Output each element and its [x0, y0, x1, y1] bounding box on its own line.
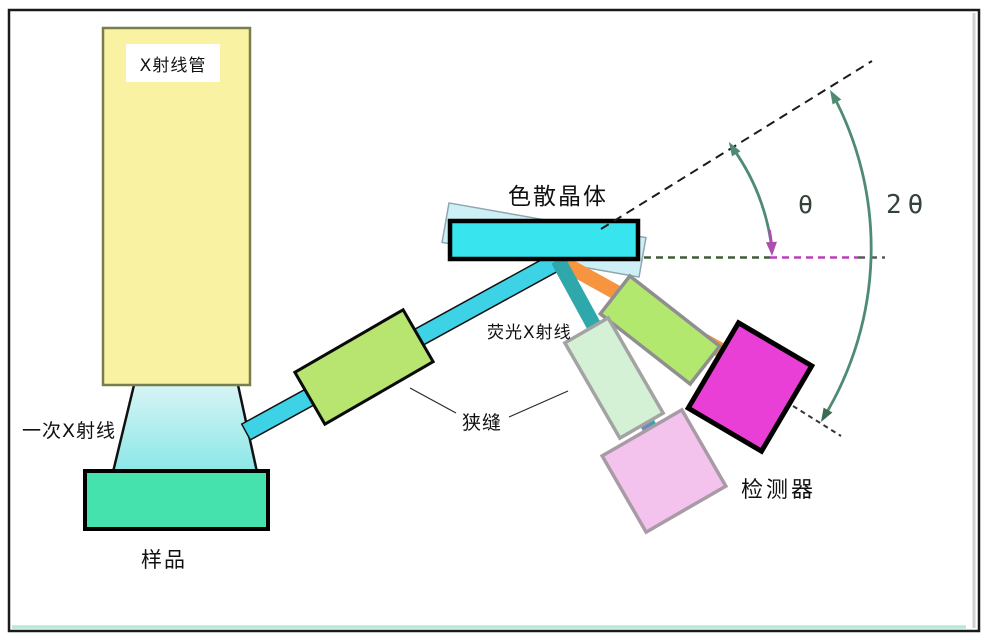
- slit-leader-line-left: [410, 388, 456, 413]
- wdxrf-schematic: X射线管 一次X射线 样品 色散晶体 荧光X射线 狭缝 检测器 θ 2θ: [0, 0, 985, 640]
- sample-label: 样品: [141, 548, 187, 572]
- detector-label: 检测器: [741, 478, 816, 503]
- primary-xray-label: 一次X射线: [22, 420, 116, 442]
- slit-label: 狭缝: [462, 412, 502, 434]
- two-theta-arc-top-arrowhead: [830, 90, 841, 105]
- theta-arc: [732, 147, 772, 250]
- two-theta-arc-bottom-arrowhead: [821, 408, 832, 422]
- two-theta-arc: [824, 95, 871, 417]
- slit-leader-line-right: [509, 391, 568, 417]
- two-theta-direction-dashed-line: [793, 406, 841, 436]
- crystal-label: 色散晶体: [508, 184, 608, 210]
- primary-beam-cone: [113, 385, 257, 472]
- theta-label: θ: [798, 190, 813, 219]
- two-theta-label: 2θ: [886, 190, 929, 220]
- xray-tube-label: X射线管: [140, 56, 207, 76]
- sample-block: [85, 471, 268, 529]
- theta-arc-top-arrowhead: [729, 142, 741, 157]
- diagram-canvas: X射线管 一次X射线 样品 色散晶体 荧光X射线 狭缝 检测器 θ 2θ: [0, 0, 985, 640]
- dispersive-crystal: [450, 221, 638, 259]
- theta-arc-bottom-arrowhead: [766, 242, 777, 256]
- fluorescent-xray-label: 荧光X射线: [487, 323, 572, 343]
- diffraction-direction-dashed-line: [601, 61, 872, 229]
- slit-1: [295, 310, 433, 424]
